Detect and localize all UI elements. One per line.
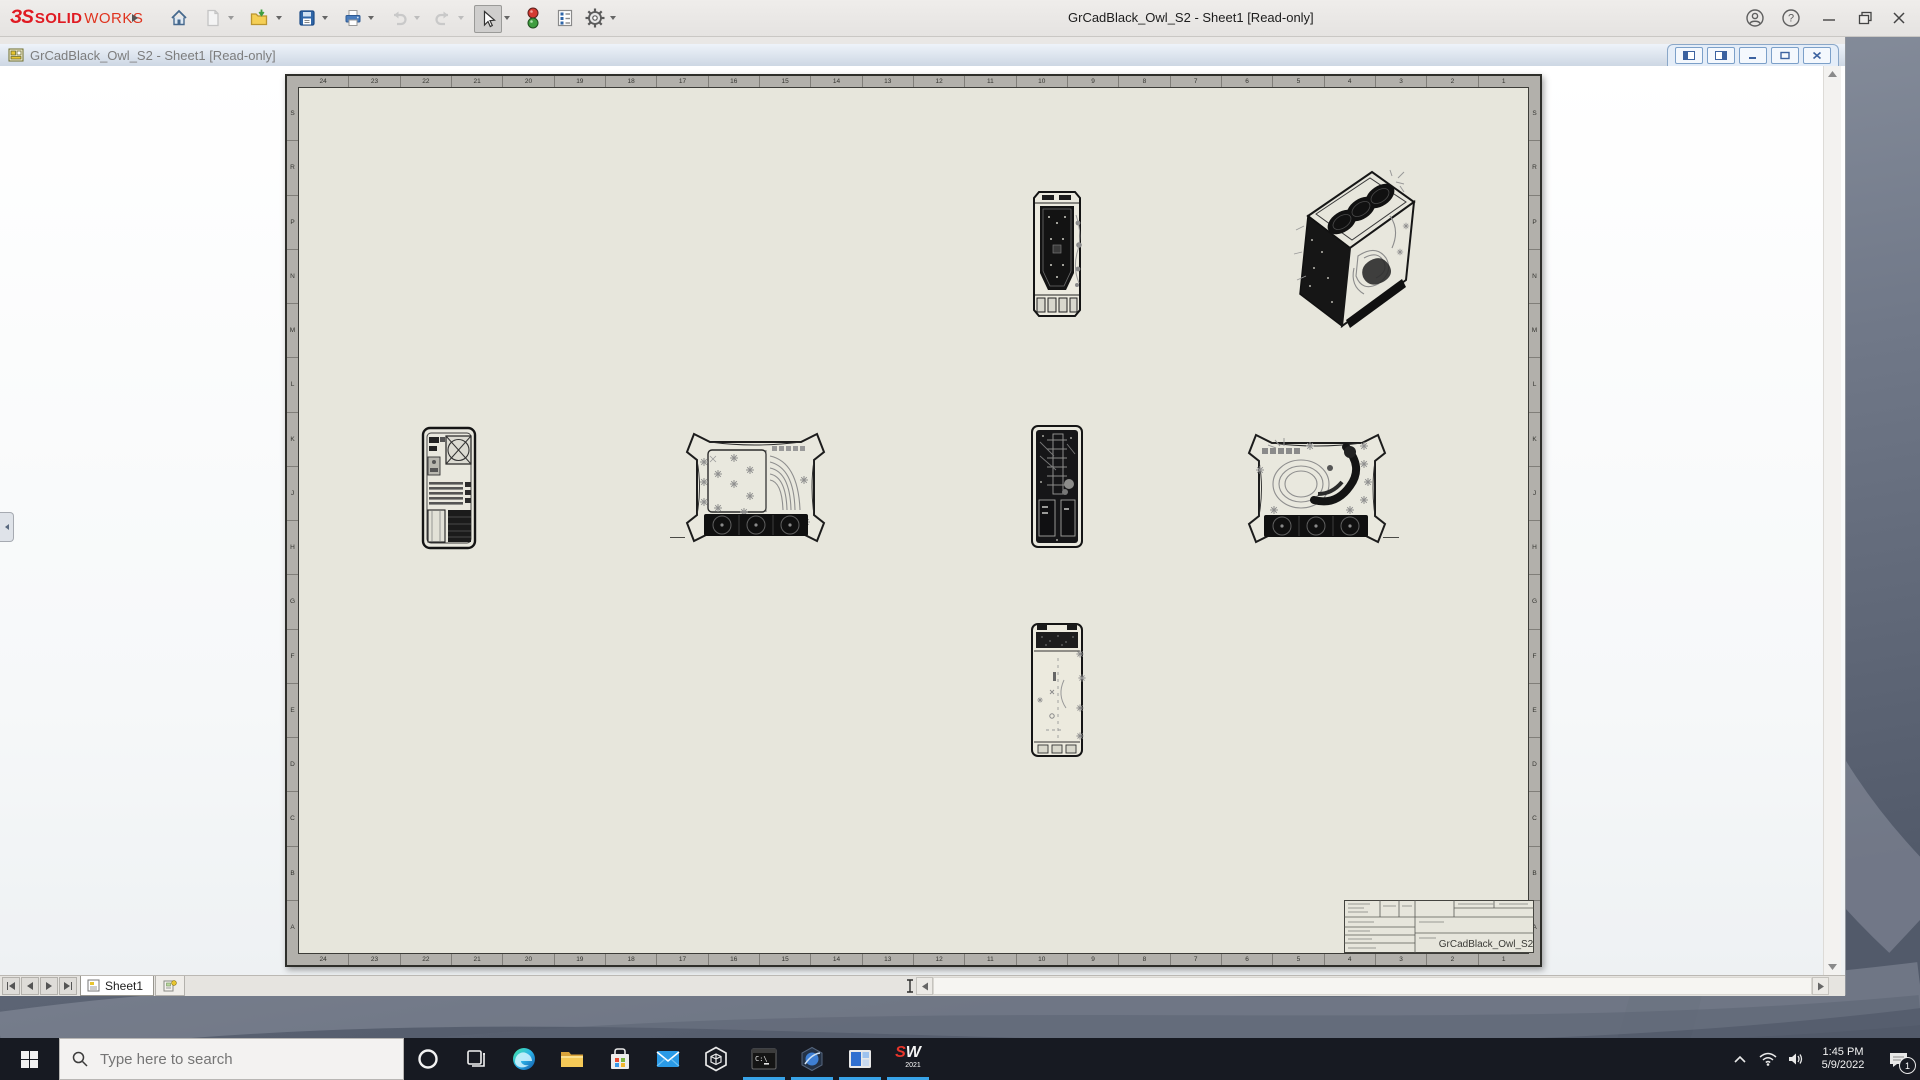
hscroll-left-button[interactable] [916, 977, 933, 995]
zone-label: K [1529, 413, 1540, 467]
zone-label: 10 [1017, 954, 1068, 965]
notification-center-button[interactable]: 1 [1876, 1038, 1920, 1080]
previous-sheet-button[interactable] [21, 977, 39, 995]
zone-label: S [287, 87, 298, 141]
new-file-button[interactable] [200, 5, 226, 31]
solidworks-logo-glyph: ЗS [10, 7, 33, 29]
zone-label: F [1529, 630, 1540, 684]
zone-label: 22 [401, 954, 452, 965]
zone-label: 3 [1376, 76, 1427, 87]
zone-label: 2 [1427, 954, 1478, 965]
drawing-view-front-mid[interactable] [1027, 422, 1087, 551]
zone-label: 19 [555, 954, 606, 965]
zone-label: 18 [606, 954, 657, 965]
taskbar-clock[interactable]: 1:45 PM 5/9/2022 [1810, 1046, 1876, 1072]
drawing-view-isometric[interactable] [1280, 156, 1420, 346]
zone-label: B [1529, 847, 1540, 901]
options-gear-button[interactable] [582, 5, 608, 31]
zone-label: 11 [965, 954, 1016, 965]
zone-label: 14 [811, 954, 862, 965]
zone-label: 15 [760, 954, 811, 965]
centerline-mark-left [670, 537, 685, 538]
cortana-button[interactable] [404, 1038, 452, 1080]
centerline-mark-right [1383, 537, 1399, 538]
titlebar: ЗS SOLIDWORKS [0, 0, 1920, 37]
zone-label: M [1529, 304, 1540, 358]
hscroll-right-button[interactable] [1812, 977, 1829, 995]
graphics-viewport[interactable]: 242322212019181716151413121110987654321 … [0, 66, 1845, 975]
show-left-pane-button[interactable] [1675, 47, 1703, 64]
display-states-icon[interactable] [520, 5, 546, 31]
zone-label: 1 [1479, 954, 1529, 965]
zone-label: P [287, 196, 298, 250]
zone-label: R [1529, 141, 1540, 195]
solidworks-app-body: GrCadBlack_Owl_S2 - Sheet1 [Read-only] 2… [0, 36, 1846, 995]
zone-label: 18 [606, 76, 657, 87]
select-tool-button[interactable] [474, 5, 502, 33]
help-button[interactable]: ? [1776, 5, 1806, 31]
remote-app-icon[interactable] [836, 1038, 884, 1080]
mail-icon[interactable] [644, 1038, 692, 1080]
save-dropdown[interactable] [320, 5, 330, 31]
doc-minimize-button[interactable] [1739, 47, 1767, 64]
document-window-controls [1667, 44, 1839, 66]
drawing-view-side-right[interactable] [1246, 422, 1388, 555]
document-title: GrCadBlack_Owl_S2 - Sheet1 [Read-only] [30, 48, 276, 63]
zone-strip-bottom: 242322212019181716151413121110987654321 [298, 954, 1529, 965]
home-button[interactable] [166, 5, 192, 31]
edge-icon[interactable] [500, 1038, 548, 1080]
zone-label: J [1529, 467, 1540, 521]
open-dropdown[interactable] [274, 5, 284, 31]
zone-label: A [287, 901, 298, 954]
zone-label: 23 [349, 76, 400, 87]
restore-button[interactable] [1850, 5, 1880, 31]
zone-label: 12 [914, 76, 965, 87]
close-button[interactable] [1884, 5, 1914, 31]
zone-label: 9 [1068, 76, 1119, 87]
notification-count-badge: 1 [1899, 1057, 1916, 1074]
zone-label: 2 [1427, 76, 1478, 87]
print-dropdown[interactable] [366, 5, 376, 31]
zone-label: L [287, 358, 298, 412]
zone-label: M [287, 304, 298, 358]
horizontal-scrollbar-track[interactable] [933, 977, 1812, 995]
zone-label: K [287, 413, 298, 467]
zone-label: 15 [760, 76, 811, 87]
file-explorer-icon[interactable] [548, 1038, 596, 1080]
new-file-dropdown[interactable] [226, 5, 236, 31]
zone-label: 24 [298, 76, 349, 87]
zone-label: 21 [452, 954, 503, 965]
zone-strip-top: 242322212019181716151413121110987654321 [298, 76, 1529, 87]
taskbar-search[interactable] [59, 1038, 404, 1080]
store-icon[interactable] [596, 1038, 644, 1080]
zone-label: C [287, 792, 298, 846]
zone-label: 5 [1273, 76, 1324, 87]
search-icon [72, 1051, 88, 1067]
select-tool-dropdown[interactable] [502, 5, 512, 31]
drawing-view-top[interactable] [1028, 620, 1086, 760]
zone-label: 7 [1171, 954, 1222, 965]
print-button[interactable] [340, 5, 366, 31]
zone-label: 10 [1017, 76, 1068, 87]
zone-label: D [287, 738, 298, 792]
volume-icon[interactable] [1782, 1038, 1810, 1080]
sheet-tab-icon [87, 979, 100, 992]
zone-label: 4 [1325, 954, 1376, 965]
zone-label: 12 [914, 954, 965, 965]
zone-label: 21 [452, 76, 503, 87]
zone-label: C [1529, 792, 1540, 846]
zone-label: 7 [1171, 76, 1222, 87]
clock-time: 1:45 PM [1810, 1046, 1876, 1059]
tab-sheet1[interactable]: Sheet1 [80, 976, 154, 996]
zone-label: 14 [811, 76, 862, 87]
zone-label: 16 [709, 76, 760, 87]
zone-label: 24 [298, 954, 349, 965]
zone-label: L [1529, 358, 1540, 412]
zone-label: N [1529, 250, 1540, 304]
last-sheet-button[interactable] [59, 977, 77, 995]
zone-label: 22 [401, 76, 452, 87]
zone-label: 4 [1325, 76, 1376, 87]
zone-label: 20 [503, 76, 554, 87]
scroll-up-button[interactable] [1826, 68, 1839, 81]
zone-label: H [1529, 521, 1540, 575]
drawing-view-side-left[interactable] [684, 422, 827, 553]
first-sheet-button[interactable] [2, 977, 20, 995]
open-button[interactable] [246, 5, 272, 31]
sheet-tab-label: Sheet1 [105, 979, 143, 993]
svg-text:?: ? [1788, 13, 1794, 25]
document-titlebar: GrCadBlack_Owl_S2 - Sheet1 [Read-only] [0, 44, 1845, 67]
zone-label: J [287, 467, 298, 521]
zone-label: P [1529, 196, 1540, 250]
zone-label: F [287, 630, 298, 684]
zone-label: 17 [657, 76, 708, 87]
zone-label: 23 [349, 954, 400, 965]
zone-label: 16 [709, 954, 760, 965]
zone-label: N [287, 250, 298, 304]
zone-label: 8 [1119, 76, 1170, 87]
zone-label: G [287, 575, 298, 629]
drawing-view-rear[interactable] [419, 424, 479, 552]
sw-year-badge: 2021 [905, 1059, 921, 1072]
zone-label: 1 [1479, 76, 1529, 87]
options-dropdown[interactable] [608, 5, 618, 31]
zone-label: D [1529, 738, 1540, 792]
drawing-view-front-top[interactable] [1029, 187, 1085, 321]
zone-strip-left: SRPNMLKJHGFEDCBA [287, 87, 298, 954]
start-button[interactable] [0, 1038, 59, 1080]
terminal-icon[interactable]: C:\ [740, 1038, 788, 1080]
clock-date: 5/9/2022 [1810, 1059, 1876, 1072]
zone-label: 5 [1273, 954, 1324, 965]
solidworks-logo: ЗS SOLIDWORKS [10, 6, 143, 30]
zone-label: 20 [503, 954, 554, 965]
zone-label: S [1529, 87, 1540, 141]
zone-label: B [287, 847, 298, 901]
zone-label: G [1529, 575, 1540, 629]
zone-label: 17 [657, 954, 708, 965]
search-input[interactable] [98, 1050, 352, 1069]
window-title: GrCadBlack_Owl_S2 - Sheet1 [Read-only] [1068, 10, 1314, 25]
collapsed-panel-tab[interactable] [0, 512, 14, 542]
zone-strip-right: SRPNMLKJHGFEDCBA [1529, 87, 1540, 954]
undo-dropdown[interactable] [412, 5, 422, 31]
show-right-pane-button[interactable] [1707, 47, 1735, 64]
3d-viewer-icon[interactable] [692, 1038, 740, 1080]
next-sheet-button[interactable] [40, 977, 58, 995]
zone-label: 19 [555, 76, 606, 87]
zone-label: 11 [965, 76, 1016, 87]
tray-chevron-icon[interactable] [1726, 1038, 1754, 1080]
title-block-drawing-name: GrCadBlack_Owl_S2 [1439, 939, 1534, 950]
zone-label: 6 [1222, 954, 1273, 965]
zone-label: 3 [1376, 954, 1427, 965]
wifi-icon[interactable] [1754, 1038, 1782, 1080]
task-view-button[interactable] [452, 1038, 500, 1080]
zone-label: 13 [863, 954, 914, 965]
svg-text:C:\: C:\ [755, 1055, 768, 1063]
title-block: GrCadBlack_Owl_S2 [1344, 900, 1534, 953]
menu-expand-arrow[interactable] [131, 13, 139, 23]
add-sheet-tab[interactable] [155, 976, 185, 996]
sheet-tab-bar: Sheet1 [0, 975, 1845, 996]
zone-label: E [1529, 684, 1540, 738]
3dexperience-icon[interactable] [788, 1038, 836, 1080]
vertical-scrollbar[interactable] [1823, 66, 1841, 975]
redo-button[interactable] [430, 5, 456, 31]
zone-label: 9 [1068, 954, 1119, 965]
windows-taskbar: C:\ SW 2021 [0, 1038, 1920, 1080]
scroll-down-button[interactable] [1826, 960, 1839, 973]
system-tray: 1:45 PM 5/9/2022 1 [1726, 1038, 1920, 1080]
sheet-field[interactable]: GrCadBlack_Owl_S2 [298, 87, 1529, 954]
zone-label: R [287, 141, 298, 195]
zone-label: H [287, 521, 298, 575]
save-button[interactable] [294, 5, 320, 31]
account-button[interactable] [1740, 5, 1770, 31]
zone-label: E [287, 684, 298, 738]
zone-label: 13 [863, 76, 914, 87]
zone-label: 6 [1222, 76, 1273, 87]
drawing-sheet[interactable]: 242322212019181716151413121110987654321 … [285, 74, 1542, 967]
zone-label: 8 [1119, 954, 1170, 965]
mouse-cursor-ibeam [906, 979, 914, 993]
redo-dropdown[interactable] [456, 5, 466, 31]
properties-button[interactable] [552, 5, 578, 31]
solidworks-2021-icon[interactable]: SW 2021 [884, 1038, 932, 1080]
doc-close-button[interactable] [1803, 47, 1831, 64]
minimize-button[interactable] [1814, 5, 1844, 31]
undo-button[interactable] [386, 5, 412, 31]
doc-restore-button[interactable] [1771, 47, 1799, 64]
drawing-document-icon [8, 47, 24, 63]
